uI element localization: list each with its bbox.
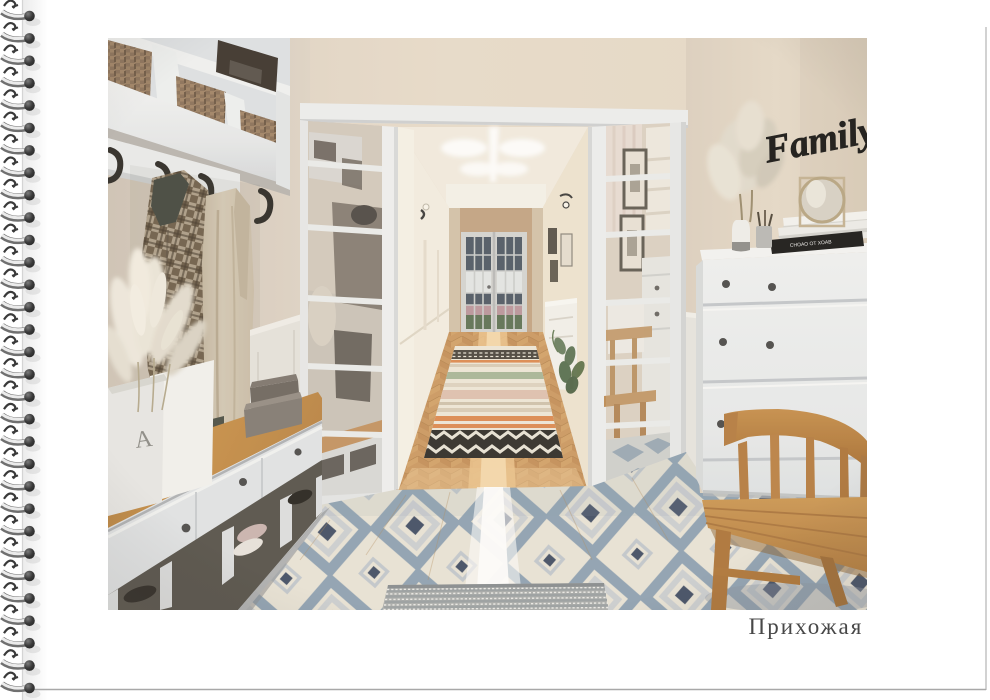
svg-text:Прихожая: Прихожая: [749, 614, 864, 639]
